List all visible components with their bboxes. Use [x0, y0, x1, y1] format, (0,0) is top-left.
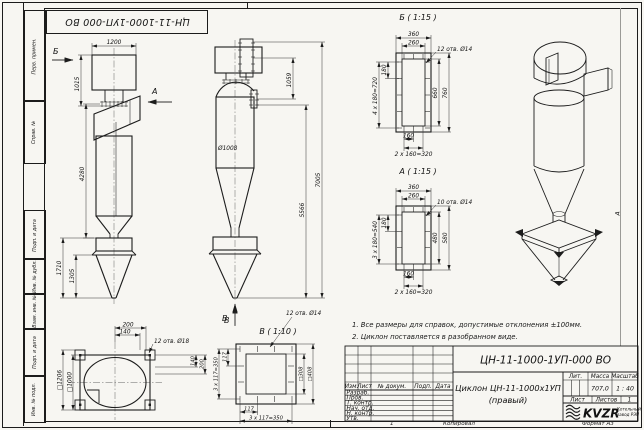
dim-label: 1015: [75, 76, 81, 91]
stamp-perv-primen: Перв. примен.: [24, 10, 46, 102]
dim-label: 1059: [287, 72, 293, 87]
scale-value: 1 : 40: [616, 386, 634, 393]
dim-label: 260: [408, 41, 419, 47]
dim-label: 360: [408, 32, 419, 38]
dim-label: 140: [191, 355, 197, 366]
dim-label: 200: [200, 358, 206, 369]
stamp-podp-data-1: Подп. и дата: [24, 210, 46, 260]
stamp-podp-data-2: Подп. и дата: [24, 328, 46, 377]
dim-label: 480: [433, 232, 439, 243]
company-line-1: Котельный: [617, 407, 641, 412]
dim-label: 660: [433, 87, 439, 98]
note-2: 2. Циклон поставляется в разобранном вид…: [352, 332, 636, 344]
rotated-designation: ЦН-11-1000-1УП-000 ВО: [65, 16, 190, 27]
stamp-inv-dubl: Инв. № дубл.: [24, 258, 46, 295]
view-front: Б 1200 1015 А: [50, 36, 214, 318]
view-section-a: А ( 1:15 ) 10 отв. Ø14 360 260 180 3 x 1…: [338, 160, 508, 310]
dim-label: 7005: [316, 172, 322, 187]
kvzr-logo-icon: [566, 405, 580, 419]
dim-label: □1000: [68, 372, 74, 393]
dim-label: 200: [122, 323, 133, 329]
footer-zone: 1: [390, 421, 394, 427]
dim-label: 4 x 180=720: [373, 77, 379, 115]
svg-text:Лист: Лист: [569, 397, 585, 403]
holes-note: 12 отв. Ø18: [154, 338, 189, 345]
view-isometric: [496, 28, 644, 316]
section-title: Б ( 1:15 ): [399, 13, 436, 22]
holes-note: 10 отв. Ø14: [437, 199, 472, 206]
view-arrow-b-label: Б: [53, 47, 59, 56]
dim-label: 5566: [300, 202, 306, 217]
inlet-scroll: [94, 96, 140, 140]
svg-text:1: 1: [628, 397, 632, 403]
doc-name-2: (правый): [489, 395, 528, 405]
svg-text:Масса: Масса: [591, 374, 610, 380]
dim-label: 180: [382, 64, 388, 75]
dim-label: 3 x 180=540: [373, 221, 379, 259]
dim-label: 2 x 160=320: [395, 290, 433, 296]
dim-label: 1200: [107, 40, 122, 46]
svg-text:№ докум.: № докум.: [377, 384, 407, 390]
dim-label: 260: [408, 194, 419, 200]
svg-text:Масштаб: Масштаб: [611, 374, 639, 380]
dim-label: □1206: [58, 370, 64, 391]
company-line-2: завод РЭП: [617, 412, 639, 417]
view-arrow-v2-letter: В: [222, 314, 228, 323]
dim-label: □308: [299, 366, 305, 382]
dim-label: 117: [223, 351, 229, 362]
doc-designation: ЦН-11-1000-1УП-000 ВО: [480, 355, 611, 367]
view-plan: 200 140 12 отв. Ø18 □1206 □1000 140 200: [54, 316, 216, 426]
outlet-flange: [240, 39, 253, 77]
dim-label: 3 x 117=350: [214, 356, 220, 391]
dim-label: 180: [382, 217, 388, 228]
svg-text:Лит.: Лит.: [568, 374, 583, 380]
svg-text:Листов: Листов: [595, 397, 618, 403]
dim-label: 580: [443, 232, 449, 243]
section-title: В ( 1:10 ): [259, 327, 296, 336]
title-block: Изм. Лист № докум. Подп. Дата Разраб. Пр…: [345, 346, 638, 421]
dim-label: Ø1008: [217, 145, 238, 152]
stamp-inv-podl: Инв. № подл.: [24, 375, 46, 423]
svg-text:Дата: Дата: [434, 384, 450, 390]
view-section-b: Б ( 1:15 ) 12 отв. Ø14 360 260 180 4 x 1…: [338, 8, 508, 160]
dim-label: 4280: [80, 166, 86, 181]
dim-label: 2 x 160=320: [395, 152, 433, 158]
iso-flange: [522, 220, 596, 248]
dim-label: □408: [308, 366, 314, 382]
dim-label: 760: [443, 87, 449, 98]
kvzr-logo-text: KVZR: [583, 407, 620, 421]
note-1: 1. Все размеры для справок, допустимые о…: [352, 320, 636, 332]
drawing-sheet: А Перв. примен. Справ. № Подп. и дата Ин…: [0, 0, 644, 430]
svg-text:Лист: Лист: [356, 384, 372, 390]
dim-label: 117: [244, 407, 255, 413]
iso-inlet-duct: [584, 68, 608, 96]
holes-note: 12 отв. Ø14: [437, 46, 472, 53]
stamp-sprav-no: Справ. №: [24, 100, 46, 164]
svg-text:Утв.: Утв.: [347, 416, 359, 422]
dim-label: 3 x 117=350: [249, 416, 284, 422]
view-section-v: В ( 1:10 ) В В ( 1:10 ) 12 отв. Ø14 117 …: [212, 294, 348, 428]
view-arrow-a-label: А: [151, 87, 157, 96]
dim-label: 1305: [70, 268, 76, 283]
holes-note: 12 отв. Ø14: [286, 310, 321, 317]
dim-label: 140: [119, 330, 130, 336]
notes: 1. Все размеры для справок, допустимые о…: [352, 320, 636, 343]
top-zone-tick: [247, 2, 248, 8]
dim-label: 160: [403, 134, 414, 140]
dim-label: 1710: [57, 260, 63, 275]
footer-format: Формат А3: [582, 421, 614, 427]
title-block-headers: Изм. Лист № докум. Подп. Дата: [345, 384, 451, 390]
rotated-designation-box: ЦН-11-1000-1УП-000 ВО: [46, 10, 208, 34]
view-side: Ø1008 1059 5566 7005 В: [196, 30, 336, 330]
footer-copied: Копировал: [443, 421, 475, 427]
section-title: А ( 1:15 ): [398, 167, 436, 176]
mass-value: 707,0: [591, 386, 609, 393]
stamp-vzam-inv: Взам. инв. №: [24, 293, 46, 330]
doc-name: Циклон ЦН-11-1000х1УП: [455, 383, 561, 393]
svg-text:Подп.: Подп.: [414, 384, 432, 390]
iso-outlet: [546, 53, 558, 85]
dim-label: 360: [408, 185, 419, 191]
dim-label: 160: [403, 272, 414, 278]
